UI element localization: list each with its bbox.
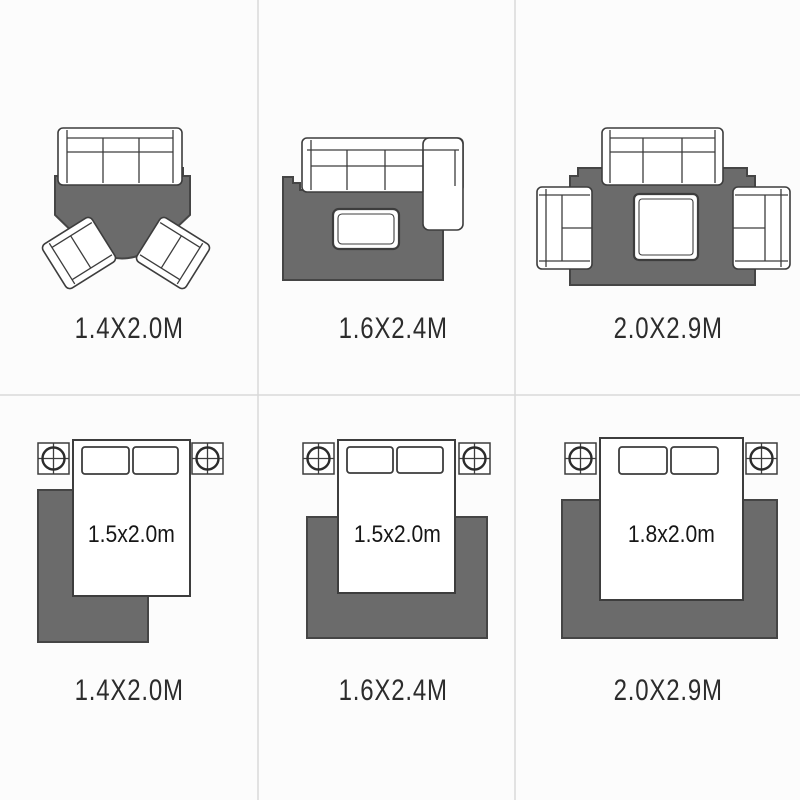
- nightstand-left-icon: [38, 443, 69, 474]
- nightstand-left-icon: [565, 443, 596, 474]
- sofa: [602, 128, 723, 185]
- rug-size-label-5: 1.6X2.4M: [283, 676, 503, 706]
- nightstand-right-icon: [746, 443, 777, 474]
- loveseat-left: [537, 187, 592, 269]
- rug-size-label-1: 1.4X2.0M: [19, 314, 239, 344]
- nightstand-left-icon: [303, 443, 334, 474]
- coffee-table-top: [333, 209, 399, 249]
- sofa-body: [602, 128, 723, 185]
- bed-size-text: 1.5x2.0m: [354, 521, 441, 549]
- bed-size-text: 1.8x2.0m: [628, 521, 715, 549]
- panel-living-three-seat: [537, 128, 790, 285]
- rug-size-label-3: 2.0X2.9M: [558, 314, 778, 344]
- rug-size-text: 1.4X2.0M: [74, 314, 183, 344]
- rug-size-text: 2.0X2.9M: [613, 314, 722, 344]
- rug-size-guide: 1.5x2.0m 1.5x2.0m 1.8x2.0m 1.4X2.0M 1.6X…: [0, 0, 800, 800]
- bed-size-label-3: 1.8x2.0m: [591, 521, 751, 549]
- rug-size-text: 1.6X2.4M: [338, 676, 447, 706]
- rug-size-text: 2.0X2.9M: [613, 676, 722, 706]
- sofa-body: [58, 128, 182, 185]
- pillow-right: [671, 447, 718, 474]
- bed-size-text: 1.5x2.0m: [88, 521, 175, 549]
- rug-size-text: 1.4X2.0M: [74, 676, 183, 706]
- panel-living-sectional: [283, 138, 463, 280]
- bed: [73, 440, 190, 596]
- chaise: [423, 138, 463, 230]
- panel-living-armchairs: [41, 128, 212, 290]
- sofa: [58, 128, 182, 185]
- coffee-table-top: [634, 194, 698, 260]
- rug-size-label-6: 2.0X2.9M: [558, 676, 778, 706]
- rug-size-label-4: 1.4X2.0M: [19, 676, 239, 706]
- rug-size-label-2: 1.6X2.4M: [283, 314, 503, 344]
- bed: [600, 438, 743, 600]
- pillow-left: [82, 447, 129, 474]
- coffee-table: [634, 194, 698, 260]
- coffee-table: [333, 209, 399, 249]
- nightstand-right-icon: [459, 443, 490, 474]
- pillow-left: [347, 447, 393, 473]
- rug-size-text: 1.6X2.4M: [338, 314, 447, 344]
- bed-size-label-1: 1.5x2.0m: [51, 521, 211, 549]
- loveseat-right: [733, 187, 790, 269]
- pillow-right: [397, 447, 443, 473]
- pillow-left: [619, 447, 667, 474]
- bed-size-label-2: 1.5x2.0m: [317, 521, 477, 549]
- pillow-right: [133, 447, 178, 474]
- bed: [338, 440, 455, 593]
- nightstand-right-icon: [192, 443, 223, 474]
